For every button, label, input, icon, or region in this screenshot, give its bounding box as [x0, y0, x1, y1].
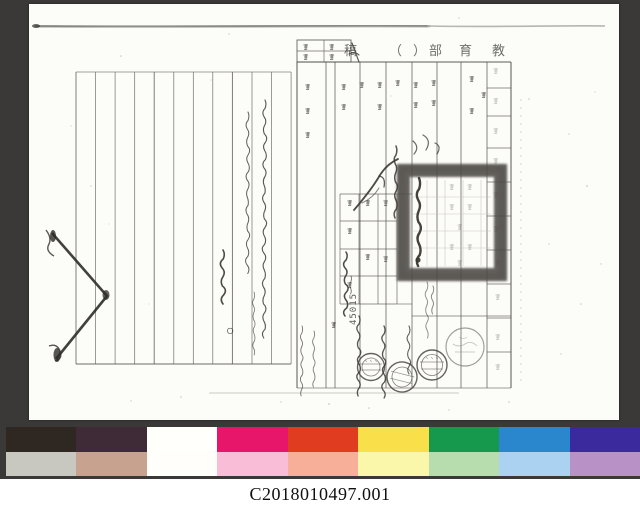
circular-stamp-3 — [417, 350, 447, 380]
color-patch — [499, 452, 569, 476]
circular-stamp-2 — [384, 359, 420, 395]
color-calibration-bar — [6, 427, 640, 476]
form-grid — [209, 40, 521, 393]
seal-interior-grid — [413, 180, 491, 266]
color-patch — [570, 427, 640, 452]
header-glyph-gao: 稿 — [344, 44, 357, 57]
color-patch — [217, 452, 287, 476]
header-glyph-jiao: 教 — [492, 44, 505, 57]
color-patch — [499, 427, 569, 452]
scan-noise-specks — [70, 17, 601, 410]
header-glyph-paren-open: （ — [389, 44, 402, 57]
footer-strip: C2018010497.001 — [0, 479, 640, 512]
header-glyph-bu: 部 — [429, 44, 442, 57]
document-artwork — [29, 4, 619, 420]
color-patch — [429, 452, 499, 476]
color-patch — [6, 452, 76, 476]
color-patch — [358, 452, 428, 476]
color-patch — [429, 427, 499, 452]
faint-label-marks — [450, 68, 501, 370]
color-patch — [76, 452, 146, 476]
color-patch — [217, 427, 287, 452]
circle-mark: ○ — [226, 325, 234, 339]
color-patch — [147, 452, 217, 476]
color-bar-row-pastel — [6, 452, 640, 476]
header-glyph-paren-close: ） — [413, 44, 426, 57]
color-patch — [288, 452, 358, 476]
color-patch — [6, 427, 76, 452]
number-stamp: 45015 — [348, 290, 360, 328]
color-patch — [76, 427, 146, 452]
header-glyph-yu: 育 — [459, 44, 472, 57]
circular-stamp-1 — [358, 354, 385, 381]
ruled-lines-left-page — [76, 72, 291, 364]
corner-mark-arrow — [46, 230, 110, 362]
color-patch — [147, 427, 217, 452]
scan-viewport: 稿 （ ） 部 育 教 45015 ○ — [0, 0, 640, 512]
color-patch — [570, 452, 640, 476]
color-patch — [288, 427, 358, 452]
color-bar-row-saturated — [6, 427, 640, 452]
catalog-number: C2018010497.001 — [249, 484, 390, 505]
paper-edge-smudge — [32, 24, 605, 28]
small-print-label-marks — [304, 44, 487, 328]
circular-stamp-4 — [446, 328, 484, 366]
color-patch — [358, 427, 428, 452]
scanned-document-page: 稿 （ ） 部 育 教 45015 ○ — [29, 4, 619, 420]
